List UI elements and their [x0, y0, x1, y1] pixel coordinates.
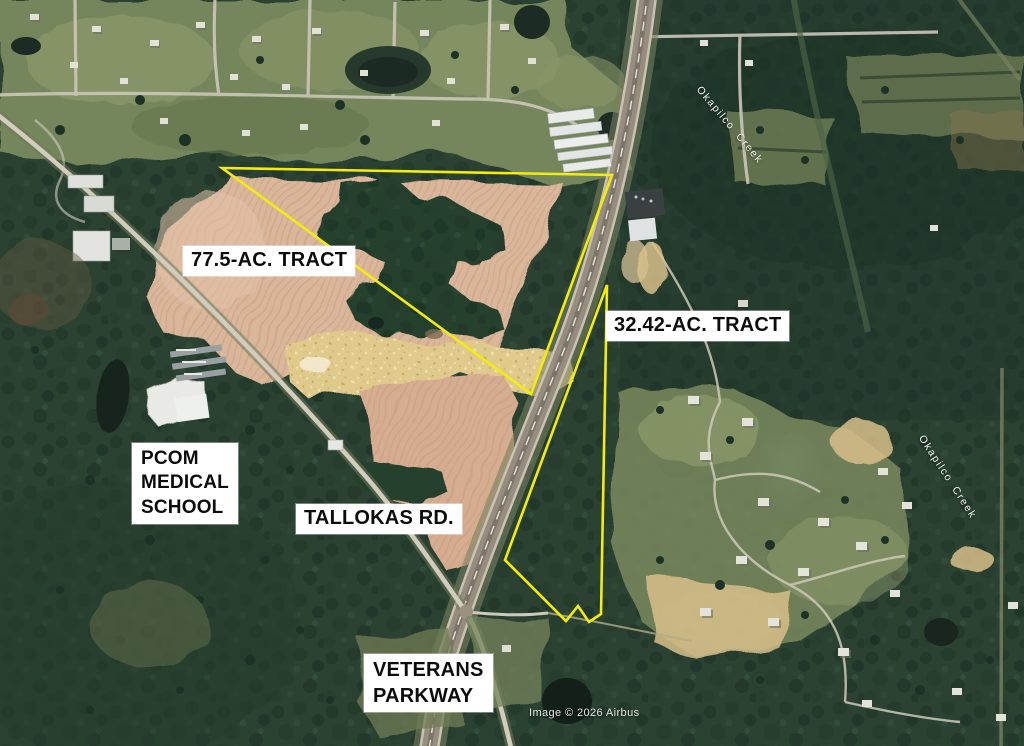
tract-77-label: 77.5-AC. TRACT: [183, 246, 355, 276]
tallokas-rd-label: TALLOKAS RD.: [296, 504, 462, 534]
tract-32-label: 32.42-AC. TRACT: [606, 311, 789, 341]
satellite-map: [0, 0, 1024, 746]
pcom-medical-school-label: PCOM MEDICAL SCHOOL: [132, 443, 238, 524]
veterans-label-line2: PARKWAY: [373, 683, 484, 709]
pcom-label-line1: PCOM: [141, 447, 229, 471]
veterans-parkway-label: VETERANS PARKWAY: [364, 654, 493, 712]
pcom-label-line3: SCHOOL: [141, 496, 229, 520]
aerial-map-screenshot: 77.5-AC. TRACT 32.42-AC. TRACT PCOM MEDI…: [0, 0, 1024, 746]
veterans-label-line1: VETERANS: [373, 657, 484, 683]
pcom-label-line2: MEDICAL: [141, 471, 229, 495]
imagery-attribution: Image © 2026 Airbus: [529, 707, 640, 719]
